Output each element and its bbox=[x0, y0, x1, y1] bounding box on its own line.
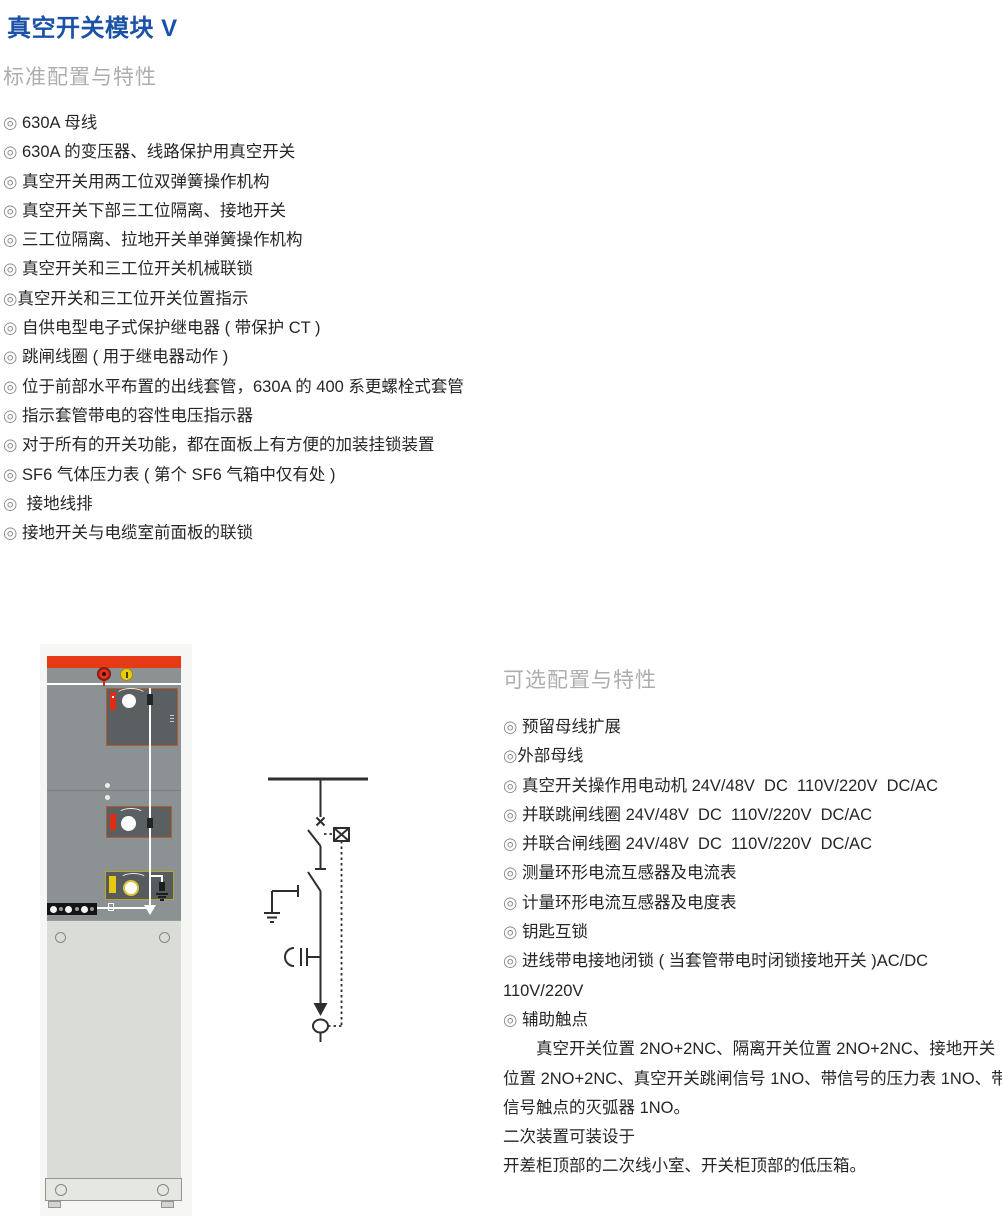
auxiliary-contacts-paragraph: 真空开关位置 2NO+2NC、隔离开关位置 2NO+2NC、接地开关 位置 2N… bbox=[503, 1035, 1002, 1123]
bullet-icon: ◎ bbox=[3, 466, 17, 484]
bullet-icon: ◎ bbox=[3, 173, 17, 191]
bullet-icon: ◎ bbox=[503, 1011, 517, 1029]
bullet-icon: ◎ bbox=[3, 114, 17, 132]
screw-hole bbox=[55, 932, 66, 943]
bullet-icon: ◎ bbox=[3, 348, 17, 366]
cable-arrow-icon bbox=[314, 1003, 328, 1016]
page-title: 真空开关模块 V bbox=[7, 14, 178, 44]
standard-section-heading: 标准配置与特性 bbox=[3, 65, 157, 91]
bushing-circle bbox=[313, 1020, 328, 1033]
list-item: ◎ 跳闸线圈 ( 用于继电器动作 ) bbox=[3, 343, 523, 372]
optional-feature-column: ◎ 预留母线扩展 ◎外部母线 ◎ 真空开关操作用电动机 24V/48V DC 1… bbox=[503, 713, 1002, 1182]
optional-section-heading: 可选配置与特性 bbox=[503, 668, 657, 694]
position-indicator-strip bbox=[47, 903, 97, 915]
list-item: ◎ 接地线排 bbox=[3, 490, 523, 519]
list-item: ◎ 真空开关操作用电动机 24V/48V DC 110V/220V DC/AC bbox=[503, 772, 1002, 801]
bullet-icon: ◎ bbox=[3, 143, 17, 161]
list-item: ◎ SF6 气体压力表 ( 第个 SF6 气箱中仅有处 ) bbox=[3, 461, 523, 490]
list-item-text: 指示套管带电的容性电压指示器 bbox=[17, 407, 253, 425]
indicator-link-square bbox=[108, 903, 114, 911]
list-item-text: 接地开关与电缆室前面板的联锁 bbox=[17, 524, 253, 542]
bullet-icon: ◎ bbox=[3, 319, 17, 337]
down-arrow-icon bbox=[144, 905, 156, 915]
list-item-text: 真空开关用两工位双弹簧操作机构 bbox=[17, 173, 269, 191]
list-item: ◎ 钥匙互锁 bbox=[503, 918, 1002, 947]
list-item-text: 真空开关和三工位开关机械联锁 bbox=[17, 260, 253, 278]
list-item-text: 位于前部水平布置的出线套管，630A 的 400 系更螺栓式套管 bbox=[17, 378, 464, 396]
list-item: ◎ 630A 母线 bbox=[3, 109, 523, 138]
list-item: ◎ 三工位隔离、拉地开关单弹簧操作机构 bbox=[3, 226, 523, 255]
bullet-icon: ◎ bbox=[3, 495, 17, 513]
screw-hole bbox=[159, 932, 170, 943]
vacuum-switch-operation-panel bbox=[106, 688, 178, 746]
cabinet-separator-line bbox=[47, 683, 181, 685]
secondary-device-location-line: 开差柜顶部的二次线小室、开关柜顶部的低压箱。 bbox=[503, 1152, 1002, 1181]
bullet-icon: ◎ bbox=[3, 202, 17, 220]
list-item-text: 计量环形电流互感器及电度表 bbox=[517, 894, 736, 912]
list-item-text: 630A 母线 bbox=[17, 114, 97, 132]
cable-compartment-door bbox=[47, 920, 181, 1178]
list-item: ◎ 并联合闸线圈 24V/48V DC 110V/220V DC/AC bbox=[503, 830, 1002, 859]
bullet-icon: ◎ bbox=[503, 777, 517, 795]
list-item-text: 跳闸线圈 ( 用于继电器动作 ) bbox=[17, 348, 228, 366]
list-item-text: 真空开关下部三工位隔离、接地开关 bbox=[17, 202, 286, 220]
list-item-text: 真空开关操作用电动机 24V/48V DC 110V/220V DC/AC bbox=[517, 777, 938, 795]
open-pushbutton-icon bbox=[97, 667, 111, 681]
bullet-icon: ◎ bbox=[503, 894, 517, 912]
bullet-icon: ◎ bbox=[3, 231, 17, 249]
cabinet-panel-seam bbox=[47, 790, 181, 791]
list-item-text: 自供电型电子式保护继电器 ( 带保护 CT ) bbox=[17, 319, 320, 337]
indicator-link-line bbox=[97, 907, 149, 909]
list-item: ◎ 对于所有的开关功能，都在面板上有方便的加装挂锁装置 bbox=[3, 431, 523, 460]
panel-dot bbox=[105, 795, 110, 800]
list-item: ◎ 辅助触点 bbox=[503, 1006, 1002, 1035]
list-item: ◎ 并联跳闸线圈 24V/48V DC 110V/220V DC/AC bbox=[503, 801, 1002, 830]
yellow-indicator-strip bbox=[109, 876, 116, 893]
list-item-text: 进线带电接地闭锁 ( 当套管带电时闭锁接地开关 )AC/DC 110V/220V bbox=[503, 952, 928, 999]
list-item: ◎ 真空开关和三工位开关机械联锁 bbox=[3, 255, 523, 284]
list-item-text: 并联跳闸线圈 24V/48V DC 110V/220V DC/AC bbox=[517, 806, 872, 824]
list-item-text: 并联合闸线圈 24V/48V DC 110V/220V DC/AC bbox=[517, 835, 872, 853]
bullet-icon: ◎ bbox=[3, 407, 17, 425]
disconnector-operation-panel bbox=[106, 806, 172, 838]
list-item-text: 钥匙互锁 bbox=[517, 923, 588, 941]
bullet-icon: ◎ bbox=[503, 806, 517, 824]
panel-dot bbox=[105, 783, 110, 788]
operation-knob-icon bbox=[121, 816, 136, 831]
base-hole bbox=[157, 1184, 169, 1196]
list-item: ◎ 进线带电接地闭锁 ( 当套管带电时闭锁接地开关 )AC/DC 110V/22… bbox=[503, 947, 1002, 1006]
panel-label-marks bbox=[170, 715, 174, 724]
bullet-icon: ◎ bbox=[503, 864, 517, 882]
list-item-text: 真空开关和三工位开关位置指示 bbox=[17, 290, 248, 308]
list-item: ◎ 真空开关用两工位双弹簧操作机构 bbox=[3, 168, 523, 197]
single-line-diagram bbox=[240, 745, 440, 1065]
list-item-text: 辅助触点 bbox=[517, 1011, 588, 1029]
cabinet-foot bbox=[161, 1201, 174, 1208]
list-item: ◎ 接地开关与电缆室前面板的联锁 bbox=[3, 519, 523, 548]
list-item: ◎ 计量环形电流互感器及电度表 bbox=[503, 889, 1002, 918]
list-item-text: 接地线排 bbox=[17, 495, 92, 513]
standard-feature-list: ◎ 630A 母线 ◎ 630A 的变压器、线路保护用真空开关 ◎ 真空开关用两… bbox=[3, 109, 523, 548]
bullet-icon: ◎ bbox=[503, 835, 517, 853]
list-item: ◎外部母线 bbox=[503, 742, 1002, 771]
earth-contact-block bbox=[159, 882, 165, 891]
cabinet-base bbox=[45, 1178, 182, 1201]
switchgear-cabinet-photo bbox=[40, 644, 192, 1216]
bullet-icon: ◎ bbox=[3, 378, 17, 396]
list-item: ◎ 真空开关下部三工位隔离、接地开关 bbox=[3, 197, 523, 226]
shaft-handle bbox=[147, 694, 153, 705]
page: 真空开关模块 V 标准配置与特性 ◎ 630A 母线 ◎ 630A 的变压器、线… bbox=[0, 0, 1002, 1217]
list-item-text: SF6 气体压力表 ( 第个 SF6 气箱中仅有处 ) bbox=[17, 466, 335, 484]
operation-knob-icon bbox=[122, 694, 136, 708]
optional-feature-list: ◎ 预留母线扩展 ◎外部母线 ◎ 真空开关操作用电动机 24V/48V DC 1… bbox=[503, 713, 1002, 1035]
bullet-icon: ◎ bbox=[503, 952, 517, 970]
bullet-icon: ◎ bbox=[3, 290, 17, 308]
close-pushbutton-icon bbox=[120, 668, 133, 681]
bullet-icon: ◎ bbox=[503, 747, 517, 765]
bullet-icon: ◎ bbox=[503, 718, 517, 736]
drive-shaft-line bbox=[149, 688, 151, 906]
cabinet-foot bbox=[48, 1201, 61, 1208]
bullet-icon: ◎ bbox=[503, 923, 517, 941]
red-indicator-strip bbox=[110, 814, 116, 830]
earthing-knob-icon bbox=[123, 880, 139, 896]
ground-symbol-icon bbox=[156, 893, 168, 895]
list-item: ◎ 自供电型电子式保护继电器 ( 带保护 CT ) bbox=[3, 314, 523, 343]
list-item-text: 对于所有的开关功能，都在面板上有方便的加装挂锁装置 bbox=[17, 436, 434, 454]
list-item: ◎ 630A 的变压器、线路保护用真空开关 bbox=[3, 138, 523, 167]
list-item-text: 预留母线扩展 bbox=[517, 718, 621, 736]
list-item: ◎ 指示套管带电的容性电压指示器 bbox=[3, 402, 523, 431]
ground-symbol-icon bbox=[160, 899, 164, 901]
voltage-indicator-arc bbox=[285, 948, 294, 966]
ground-symbol-icon bbox=[158, 896, 166, 898]
bullet-icon: ◎ bbox=[3, 260, 17, 278]
list-item: ◎ 测量环形电流互感器及电流表 bbox=[503, 859, 1002, 888]
list-item: ◎ 位于前部水平布置的出线套管，630A 的 400 系更螺栓式套管 bbox=[3, 373, 523, 402]
switch-blade-lower bbox=[308, 872, 321, 891]
secondary-device-line: 二次装置可装设于 bbox=[503, 1123, 1002, 1152]
list-item: ◎真空开关和三工位开关位置指示 bbox=[3, 285, 523, 314]
list-item-text: 630A 的变压器、线路保护用真空开关 bbox=[17, 143, 295, 161]
cabinet-top-band bbox=[47, 656, 181, 668]
bullet-icon: ◎ bbox=[3, 436, 17, 454]
switch-blade-upper bbox=[308, 830, 321, 846]
bullet-icon: ◎ bbox=[3, 524, 17, 542]
list-item-text: 测量环形电流互感器及电流表 bbox=[517, 864, 736, 882]
shaft-handle bbox=[147, 818, 153, 828]
list-item: ◎ 预留母线扩展 bbox=[503, 713, 1002, 742]
list-item-text: 外部母线 bbox=[517, 747, 583, 765]
base-hole bbox=[55, 1184, 67, 1196]
list-item-text: 三工位隔离、拉地开关单弹簧操作机构 bbox=[17, 231, 302, 249]
